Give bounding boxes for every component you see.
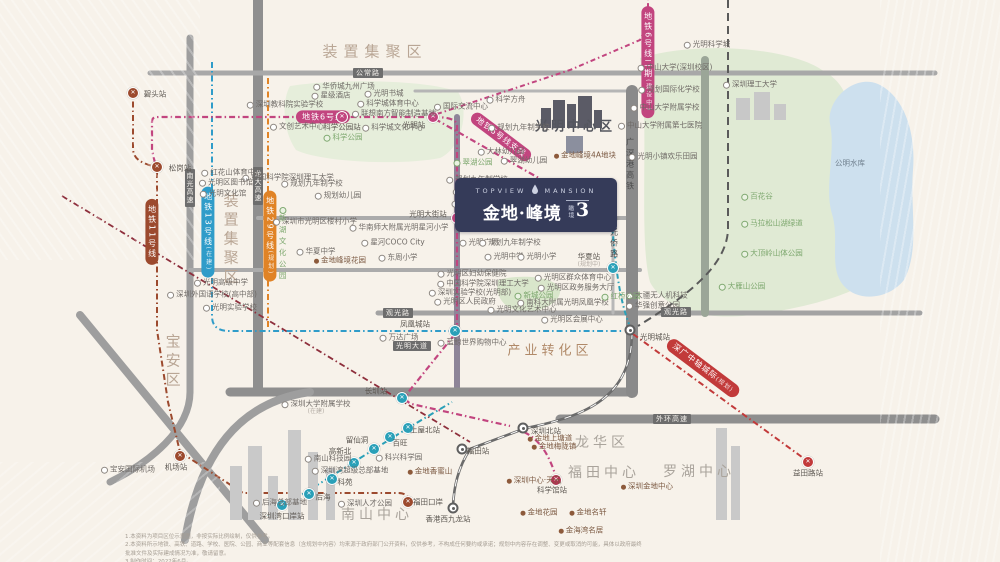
poi-ring-icon [253,499,260,506]
poi-label: 联想南方智能制造基地 [352,110,436,119]
poi-name: 光明高级中学 [203,278,248,287]
park-name: 百花谷 [750,192,773,201]
poi-label: 深圳教科院实验学校 [247,101,324,110]
park-ring-icon [280,207,287,214]
project-label: 金地峰境花园 [314,257,366,266]
poi-ring-icon [488,124,495,131]
poi-label: 光明小学 [518,253,557,262]
poi-name: 后海总部基地 [262,498,307,507]
metro-line-capsule: 地铁13号线(在建) [201,187,214,278]
park-ring-icon [741,193,748,200]
poi-ring-icon [281,180,288,187]
zone-label: 南山中心 [341,507,413,523]
poi-label: 光明区群众体育中心 [535,274,612,283]
park-ring-icon [602,293,609,300]
poi-ring-icon [631,104,638,111]
park-label: 大雁山公园 [719,283,766,292]
metro-station-icon: ✕ [127,87,139,99]
park-label: 百花谷 [741,193,773,202]
poi-ring-icon [501,157,508,164]
park-label: 大顶岭山体公园 [741,250,803,259]
poi-ring-icon [434,103,441,110]
poi-name: 华夏中学 [306,247,336,256]
park-name: 马拉松山湖绿道 [750,219,803,228]
project-dot-icon [532,444,537,449]
poi-name: 光明科学城 [693,40,731,49]
metro-line-capsule: 地铁29号线(规划) [263,191,276,282]
project-label: 深圳金地中心 [621,483,673,492]
poi-ring-icon [479,239,486,246]
poi-label: 万达广场 [380,334,419,343]
project-dot-icon [408,469,413,474]
poi-name: 光明小镇欢乐田园 [638,152,698,161]
poi-name: 中山大学附属学校 [640,103,700,112]
poi-ring-icon [352,110,359,117]
project-name: 金地峰境4A地块 [561,151,616,160]
poi-ring-icon [487,96,494,103]
logo-en-left: TOPVIEW [476,187,527,195]
metro-station-label: 碧头站 [144,91,167,100]
poi-ring-icon [361,239,368,246]
park-ring-icon [741,220,748,227]
poi-label: 国际交流中心 [434,103,488,112]
line-status: (规划) [267,251,274,276]
poi-ring-icon [357,100,364,107]
park-name: 科学公园 [333,133,363,142]
poi-name: 华南师大附属光明星河小学 [359,223,449,232]
park-label: 红桥公园 [602,293,641,302]
poi-name: 规划国际化学校 [647,85,700,94]
poi-ring-icon [485,253,492,260]
poi-label: 规划九年制学校 [479,239,541,248]
disclaimer-line-2: 2.本资料所示地铁、高铁、道路、学校、医院、公园、商业等配套信息（含规划中内容）… [125,541,645,558]
project-dot-icon [521,510,526,515]
poi-ring-icon [429,289,436,296]
poi-ring-icon [518,253,525,260]
project-name: 金地梅陇镇 [539,442,577,451]
zone-label: 宝安区 [163,334,180,391]
poi-name: 光明区妇幼保健院 [447,269,507,278]
zone-label: 装置集聚区 [322,43,427,60]
metro-station-icon: ✕ [174,450,186,462]
poi-label: 光明小镇欢乐田园 [629,153,698,162]
park-label: 马拉松山湖绿道 [741,220,803,229]
poi-ring-icon [446,176,453,183]
metro-station-label: 科学公园站 [323,124,361,133]
poi-name: 科兴科学园 [385,453,423,462]
poi-ring-icon [629,153,636,160]
poi-ring-icon [338,500,345,507]
rail-corridor-label: 光侨路 [609,228,618,261]
metro-station-label: 机场站 [165,464,188,473]
poi-name: 星河COCO City [370,238,424,247]
park-label: 新城公园 [515,292,554,301]
disclaimer: 1.本资料为项目区位示意图，非按实际比例绘制，仅供参考。 2.本资料所示地铁、高… [125,533,645,562]
poi-ring-icon [535,274,542,281]
poi-name: 万达广场 [389,333,419,342]
project-label: 金地梅陇镇 [532,443,577,452]
poi-name: 规划九年制学校 [290,179,343,188]
poi-name: 光明区图书馆 [208,178,253,187]
poi-label: 中山大学(深圳校区) [638,64,713,73]
logo-badge-small: 瞰境 [566,205,575,219]
project-dot-icon [507,478,512,483]
poi-ring-icon [201,169,208,176]
poi-name: 深圳教科院实验学校 [256,100,324,109]
park-name: 大雁山公园 [728,282,766,291]
railway-station-icon [448,503,459,514]
poi-name: 深圳大学附属学校 [291,399,351,408]
location-map: 装置集聚区装置集聚区宝安区光明中心区产业转化区南山中心龙华区福田中心罗湖中心地铁… [0,0,1000,562]
road-label: 公常路 [353,68,383,78]
disclaimer-line-3: 3.制作时间：2022年6月。 [125,558,645,562]
line-status: (在建) [205,247,212,272]
metro-station-icon: ✕ [449,325,461,337]
project-logo: TOPVIEW MANSION 金地·峰境 瞰境 3 [455,178,617,232]
poi-ring-icon [380,334,387,341]
poi-ring-icon [638,86,645,93]
lake-label: 公明水库 [835,160,865,169]
poi-ring-icon [194,279,201,286]
poi-name: 光明区政务服务大厅 [547,283,615,292]
poi-ring-icon [434,298,441,305]
poi-label: 光明高级中学 [194,279,248,288]
poi-ring-icon [541,316,548,323]
poi-label: 深圳大学附属学校(在建) [282,400,351,416]
park-name: 翠湖公园 [463,158,493,167]
poi-name: 规划幼儿园 [324,191,362,200]
poi-name: 光明文化馆 [209,189,247,198]
poi-label: 光明科学城 [684,41,731,50]
poi-name: 光明区人民政府 [443,297,496,306]
zone-label: 福田中心 [568,465,640,481]
poi-label: 深圳外国语学校(高中部) [167,291,257,300]
poi-ring-icon [379,254,386,261]
poi-ring-icon [365,90,372,97]
poi-label: 宝安国际机场 [101,466,155,475]
poi-name: 联想南方智能制造基地 [361,109,436,118]
poi-ring-icon [270,123,277,130]
line-name: 深广中轴城际 [671,342,720,382]
railway-station-label: 光明城站 [640,334,670,343]
poi-label: 科学城体育中心 [357,100,419,109]
park-ring-icon [454,159,461,166]
poi-label: 星级酒店 [312,92,351,101]
poi-ring-icon [315,192,322,199]
poi-label: 深圳理工大学 [723,81,777,90]
metro-station-label: 光明大街站 [409,211,447,220]
poi-ring-icon [684,41,691,48]
poi-name: 中山大学(深圳校区) [647,63,713,72]
metro-station-icon: ✕ [151,161,163,173]
metro-station-icon: ✕ [336,111,348,123]
project-name: 深圳中心·天元 [514,476,561,485]
logo-cn-name: 金地·峰境 [483,199,562,224]
poi-ring-icon [305,455,312,462]
poi-status: (在建) [282,409,351,416]
metro-station-label: 上屋北站 [410,427,440,436]
poi-label: 华南师大附属光明星河小学 [350,224,449,233]
metro-station-label: 长圳站 [365,388,388,397]
project-name: 金地名轩 [577,508,607,517]
map-labels-layer: 装置集聚区装置集聚区宝安区光明中心区产业转化区南山中心龙华区福田中心罗湖中心地铁… [0,0,1000,562]
park-ring-icon [324,134,331,141]
poi-name: 翠湖幼儿园 [510,156,548,165]
metro-line-capsule: 地铁11号线 [145,199,158,265]
poi-ring-icon [312,467,319,474]
poi-name: 星级酒店 [321,91,351,100]
park-name: 红桥公园 [611,292,641,301]
metro-station-label: 松岗站 [169,165,192,174]
park-ring-icon [515,292,522,299]
water-drop-icon [531,184,539,197]
poi-label: 深圳湾超级总部基地 [312,467,389,476]
poi-ring-icon [199,179,206,186]
railway-station-icon [625,325,636,336]
poi-name: 光明书城 [374,89,404,98]
poi-ring-icon [203,304,210,311]
poi-name: 光明小学 [527,252,557,261]
poi-name: 科学城文化中心 [371,123,424,132]
metro-line-capsule: 深广中轴城际(规划) [664,336,742,399]
poi-ring-icon [313,83,320,90]
poi-label: 中山大学附属第七医院 [618,122,702,131]
poi-name: 文创艺术中心 [279,122,324,131]
poi-ring-icon [312,92,319,99]
project-name: 金地峰境花园 [321,256,366,265]
railway-station-label: 福田站 [467,448,490,457]
poi-name: 宝安国际机场 [110,465,155,474]
poi-name: 规划九年制学校 [488,238,541,247]
metro-station-label: 留仙洞 [346,437,369,446]
project-dot-icon [528,436,533,441]
poi-ring-icon [297,248,304,255]
poi-label: 深圳人才公园 [338,500,392,509]
poi-ring-icon [438,270,445,277]
park-name: 新城公园 [524,291,554,300]
poi-label: 科学城文化中心 [362,124,424,133]
poi-label: 光明文化馆 [200,190,247,199]
poi-ring-icon [282,401,289,408]
railway-station-label: 香港西九龙站 [426,516,471,525]
poi-name: 蓝鲸世界购物中心 [447,338,507,347]
poi-label: 光明实验学校 [203,304,257,313]
poi-ring-icon [460,239,467,246]
zone-label: 龙华区 [575,435,629,451]
poi-name: 中国科学院深圳理工大学 [446,279,529,288]
poi-label: 光明区图书馆 [199,179,253,188]
poi-ring-icon [438,339,445,346]
park-ring-icon [719,283,726,290]
project-name: 深圳金地中心 [628,482,673,491]
poi-label: 光明书城 [365,90,404,99]
metro-station-label: 科苑 [338,479,353,488]
poi-label: 南山科技园 [305,455,352,464]
poi-name: 深圳人才公园 [347,499,392,508]
road-label: 南光高速 [185,169,195,207]
project-name: 金地花园 [528,508,558,517]
poi-label: 光明区妇幼保健院 [438,270,507,279]
road-label: 光明大道 [393,341,431,351]
road-label: 观光路 [383,308,413,318]
poi-ring-icon [723,81,730,88]
poi-ring-icon [101,466,108,473]
poi-ring-icon [200,190,207,197]
poi-ring-icon [376,454,383,461]
logo-en-right: MANSION [544,187,596,195]
poi-ring-icon [618,122,625,129]
park-label: 新湖文化公园 [277,207,288,283]
poi-ring-icon [247,101,254,108]
poi-label: 规划幼儿园 [315,192,362,201]
poi-name: 国际交流中心 [443,102,488,111]
project-label: 深圳中心·天元 [507,477,561,486]
project-label: 金地名轩 [570,509,607,518]
rail-corridor-label: 广深港高铁 [625,138,634,193]
metro-station-icon: ✕ [802,456,814,468]
poi-ring-icon [478,148,485,155]
poi-name: 光明区会展中心 [550,315,603,324]
poi-label: 规划国际化学校 [638,86,700,95]
logo-badge-number: 3 [576,202,589,219]
poi-name: 光明实验学校 [212,303,257,312]
metro-station-label: 科学馆站 [537,487,567,496]
poi-name: 规划九年制学校 [497,123,550,132]
line-name: 地铁11号线 [148,205,157,259]
project-name: 金地香蜜山 [415,467,453,476]
poi-name: 华强创意公园 [635,301,680,310]
project-label: 金地峰境4A地块 [554,152,616,161]
poi-name: 深圳理工大学 [732,80,777,89]
poi-name: 科学城体育中心 [366,99,419,108]
poi-name: 大林幼儿园 [487,147,525,156]
project-label: 金地花园 [521,509,558,518]
project-dot-icon [314,258,319,263]
poi-ring-icon [626,302,633,309]
poi-name: 东周小学 [388,253,418,262]
project-dot-icon [554,153,559,158]
poi-label: 文创艺术中心 [270,123,324,132]
zone-label: 装置集聚区 [221,193,238,288]
poi-label: 华强创意公园 [626,302,680,311]
poi-name: 深圳实验学校(光明部) [438,288,511,297]
metro-station-label: 华夏站(规划中) [578,253,601,269]
station-status: (规划中) [578,262,601,269]
poi-ring-icon [167,291,174,298]
road-label: 外环高速 [653,414,691,424]
line-status: (规划) [714,376,735,394]
poi-name: 深圳湾超级总部基地 [321,466,389,475]
metro-station-label: 凤凰城站 [400,321,430,330]
poi-label: 后海总部基地 [253,499,307,508]
metro-station-label: 益田路站 [793,470,823,479]
logo-phase-badge: 瞰境 3 [566,200,589,219]
metro-station-label: 深圳湾口岸站 [260,513,305,522]
poi-label: 翠湖幼儿园 [501,157,548,166]
poi-ring-icon [437,280,444,287]
metro-station-label: 福田口岸 [413,499,443,508]
poi-label: 光明区会展中心 [541,316,603,325]
zone-label: 罗湖中心 [663,464,735,480]
zone-label: 产业转化区 [507,345,592,360]
project-dot-icon [570,510,575,515]
railway-station-icon [518,423,529,434]
metro-station-icon: ✕ [396,392,408,404]
poi-name: 大疆无人机科技 [635,291,688,300]
poi-name: 深圳外国语学校(高中部) [176,290,257,299]
poi-label: 中山大学附属学校 [631,104,700,113]
park-name: 新湖文化公园 [278,214,287,283]
line-name: 地铁13号线 [204,193,213,247]
park-label: 科学公园 [324,134,363,143]
poi-ring-icon [638,64,645,71]
park-name: 大顶岭山体公园 [750,249,803,258]
poi-name: 南山科技园 [314,454,352,463]
metro-station-label: 后海 [316,494,331,503]
poi-name: 中山大学附属第七医院 [627,121,702,130]
poi-label: 星河COCO City [361,239,424,248]
poi-ring-icon [488,306,495,313]
poi-name: 科学方舟 [496,95,526,104]
park-label: 翠湖公园 [454,159,493,168]
poi-name: 光明区群众体育中心 [544,273,612,282]
poi-label: 科兴科学园 [376,454,423,463]
poi-label: 科学方舟 [487,96,526,105]
metro-station-label: 百旺 [393,440,408,449]
poi-label: 规划九年制学校 [281,180,343,189]
project-dot-icon [621,484,626,489]
poi-label: 规划九年制学校 [488,124,550,133]
disclaimer-line-1: 1.本资料为项目区位示意图，非按实际比例绘制，仅供参考。 [125,533,645,541]
poi-ring-icon [362,124,369,131]
project-label: 金地香蜜山 [408,468,453,477]
park-ring-icon [741,250,748,257]
poi-label: 蓝鲸世界购物中心 [438,339,507,348]
poi-label: 东周小学 [379,254,418,263]
poi-name: 深圳市光明区楼村小学 [282,217,357,226]
